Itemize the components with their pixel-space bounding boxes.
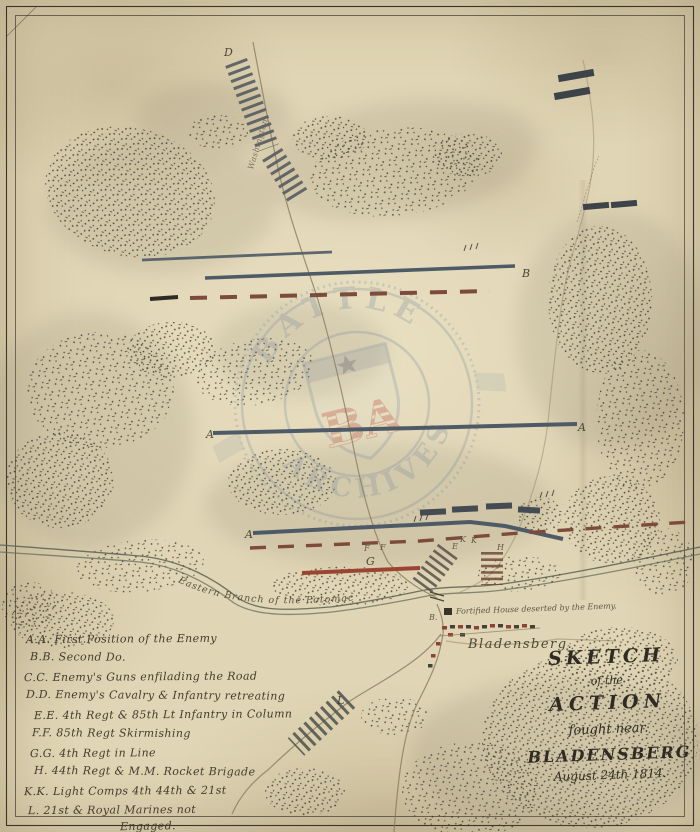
title-bladensberg: BLADENSBERG — [523, 742, 696, 767]
unit-line-second-position — [205, 266, 515, 278]
letter-f1: F — [363, 544, 370, 553]
letter-d: D — [223, 46, 233, 59]
letter-a2: A — [577, 421, 586, 434]
legend-item: H. 44th Regt & M.M. Rocket Brigade — [16, 761, 361, 782]
legend-item: F.F. 85th Regt Skirmishing — [16, 723, 361, 744]
map-sheet: BATTLE ARCHIVES BA Eastern Branch of the… — [0, 0, 700, 832]
title-sketch: SKETCH — [520, 643, 693, 671]
legend-item: A.A. First Position of the Enemy — [16, 628, 361, 649]
letter-a1: A — [205, 428, 214, 441]
letter-k2: K — [470, 536, 478, 545]
letter-h: H — [496, 543, 505, 552]
letter-b: B — [521, 267, 530, 280]
fortified-house-note: Fortified House deserted by the Enemy. — [455, 601, 617, 616]
bridge — [430, 592, 444, 601]
legend-item: B.B. Second Do. — [16, 647, 361, 668]
gun-line-solid-start — [150, 297, 178, 299]
legend-item: C.C. Enemy's Guns enfilading the Road — [16, 666, 361, 687]
letter-f2: F — [379, 543, 386, 552]
watermark-ribbon-left — [211, 431, 246, 463]
legend-item: G.G. 4th Regt in Line — [16, 742, 361, 763]
legend: A.A. First Position of the Enemy B.B. Se… — [16, 629, 361, 832]
title-block: SKETCH of the ACTION fought near. BLADEN… — [520, 643, 697, 785]
letter-k1: K — [459, 535, 467, 544]
title-fought-near: fought near. — [522, 719, 694, 740]
letter-a3: A — [244, 528, 253, 541]
legend-item: E.E. 4th Regt & 85th Lt Infantry in Colu… — [16, 704, 361, 725]
legend-item: K.K. Light Comps 4th 44th & 21st — [16, 780, 361, 801]
letter-g: G — [366, 555, 375, 568]
fortified-house — [444, 608, 452, 615]
letter-e: E — [451, 542, 458, 551]
title-of-the: of the — [521, 671, 693, 690]
letter-house-b: B. — [428, 613, 437, 622]
title-action: ACTION — [521, 689, 694, 717]
legend-item: D.D. Enemy's Cavalry & Infantry retreati… — [16, 685, 361, 706]
